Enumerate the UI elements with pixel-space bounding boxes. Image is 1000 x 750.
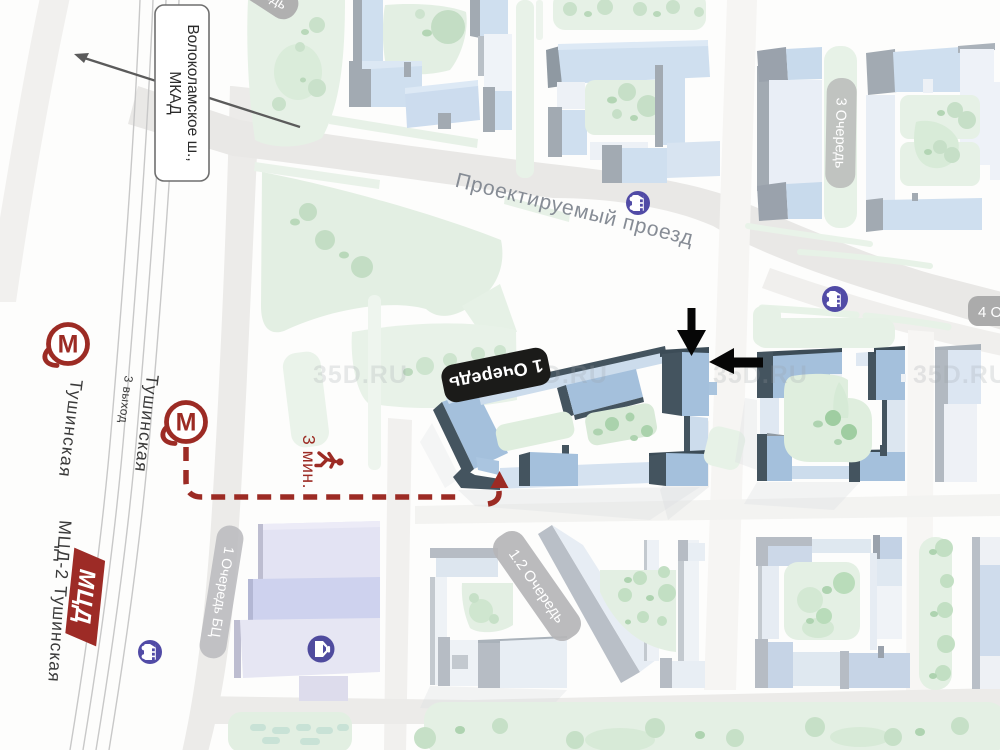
svg-text:МКАД: МКАД [166, 71, 183, 115]
svg-text:35D.RU: 35D.RU [313, 361, 408, 389]
svg-text:Волоколамское ш.,: Волоколамское ш., [184, 24, 201, 161]
svg-text:М: М [176, 409, 197, 437]
svg-text:3 Очередь: 3 Очередь [831, 97, 848, 168]
svg-text:35D.RU: 35D.RU [913, 361, 1000, 389]
svg-text:3 мин.: 3 мин. [299, 435, 319, 489]
svg-text:М: М [58, 331, 79, 359]
svg-text:4 Оч: 4 Оч [978, 304, 1000, 321]
